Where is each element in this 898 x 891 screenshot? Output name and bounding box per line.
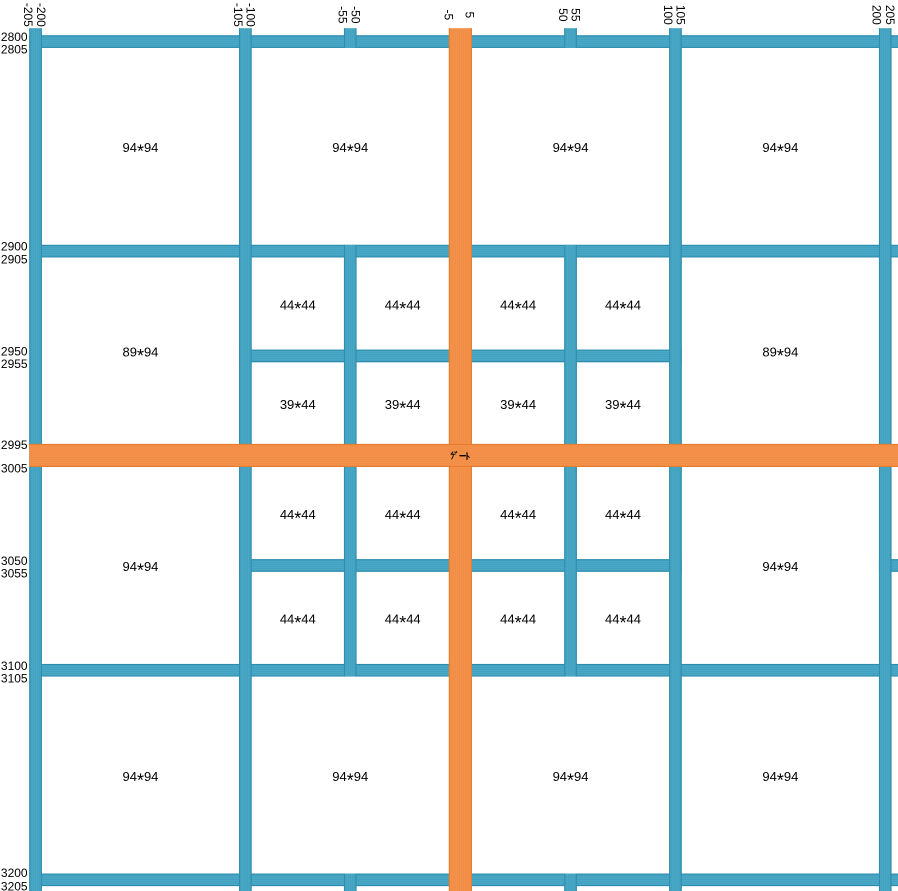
svg-text:200: 200 (870, 5, 884, 25)
svg-text:205: 205 (883, 5, 897, 25)
svg-text:-55: -55 (336, 6, 350, 24)
svg-text:3005: 3005 (1, 461, 28, 475)
svg-text:-50: -50 (348, 6, 362, 24)
svg-text:3105: 3105 (1, 672, 28, 686)
svg-text:-5: -5 (442, 10, 456, 21)
svg-text:100: 100 (661, 5, 675, 25)
svg-text:-200: -200 (34, 3, 48, 27)
svg-text:55: 55 (569, 8, 583, 22)
svg-text:-205: -205 (21, 3, 35, 27)
svg-text:3205: 3205 (1, 880, 28, 891)
svg-text:2805: 2805 (1, 43, 28, 57)
svg-text:2995: 2995 (1, 438, 28, 452)
svg-text:50: 50 (556, 8, 570, 22)
svg-text:-100: -100 (244, 3, 258, 27)
svg-text:3055: 3055 (1, 567, 28, 581)
svg-text:105: 105 (674, 5, 688, 25)
svg-text:3200: 3200 (1, 866, 28, 880)
svg-text:5: 5 (463, 12, 477, 19)
svg-text:-105: -105 (231, 3, 245, 27)
svg-text:2955: 2955 (1, 357, 28, 371)
svg-text:2905: 2905 (1, 252, 28, 266)
